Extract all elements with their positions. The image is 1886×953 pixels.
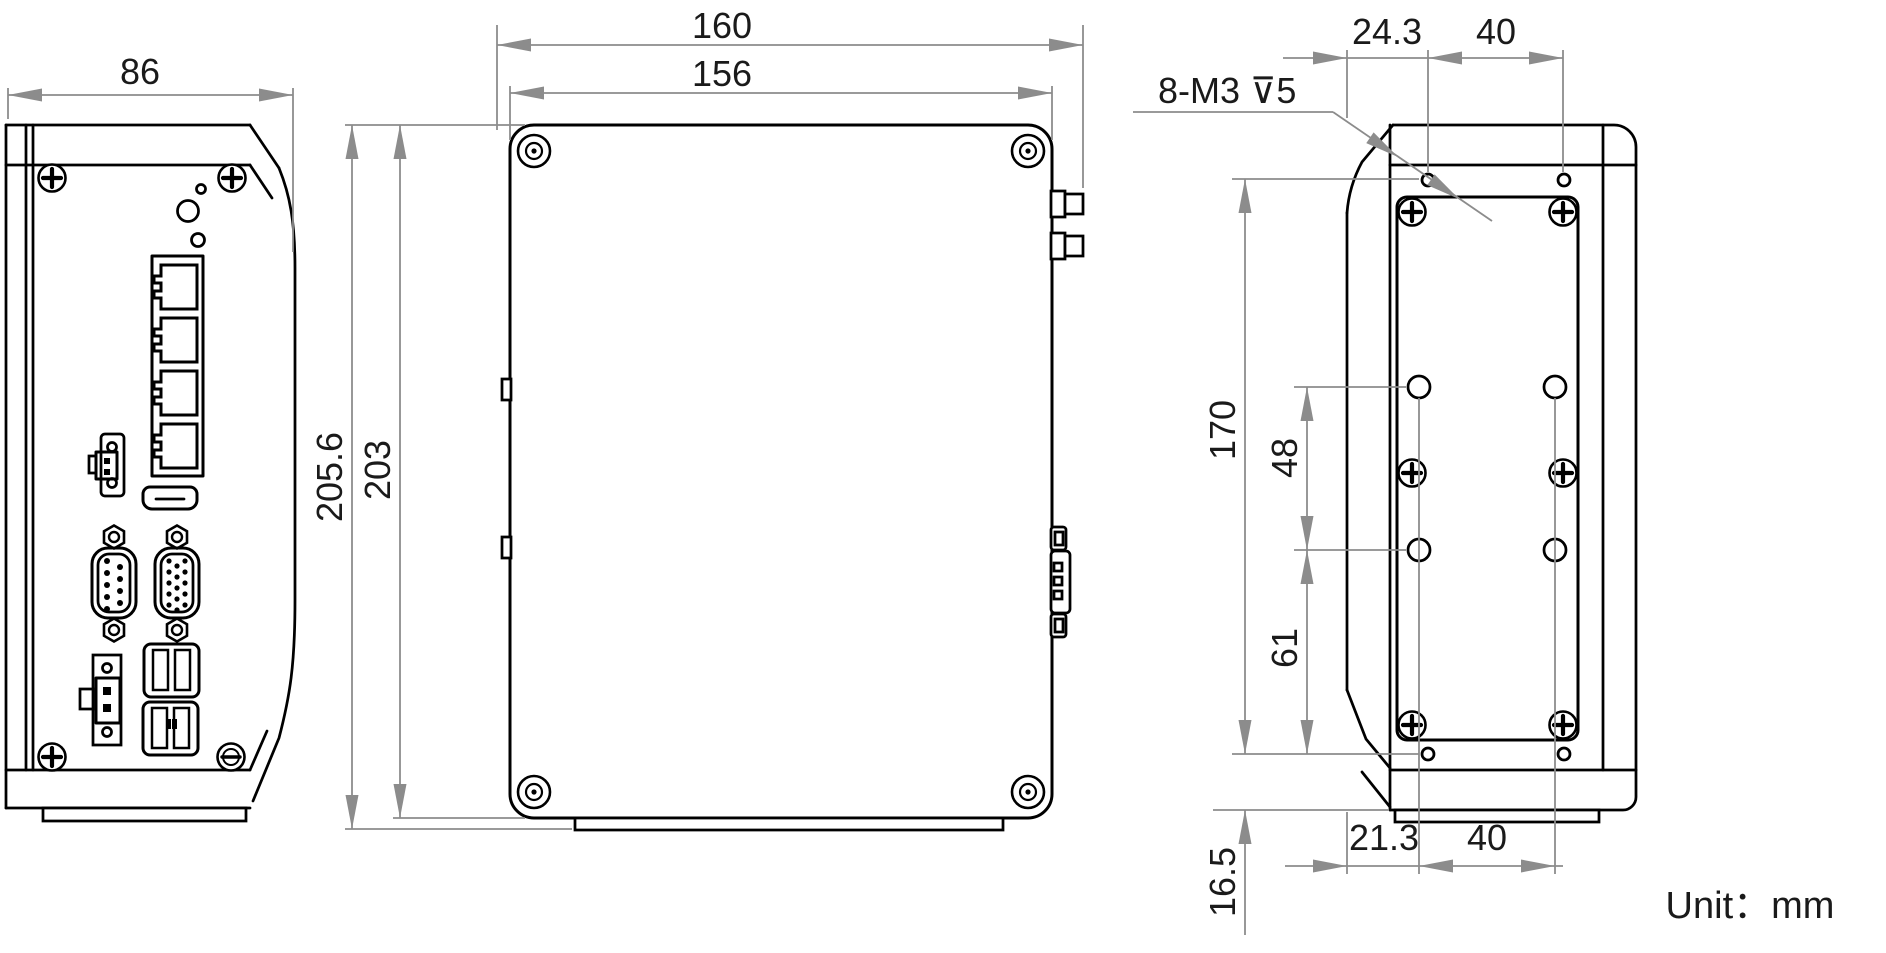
technical-drawing-page: 86 — [0, 0, 1886, 953]
dim-side-overall-height: 205.6 — [309, 432, 350, 522]
dim-rear-bottom-spacing: 40 — [1467, 817, 1507, 858]
dim-side-body-width: 156 — [692, 53, 752, 94]
dim-side-overall-width: 160 — [692, 5, 752, 46]
dim-rear-bottom-offset: 21.3 — [1349, 817, 1419, 858]
dim-rear-lower-spacing: 61 — [1264, 628, 1305, 668]
dimension-drawing: 86 — [0, 0, 1886, 953]
dim-rear-top-spacing: 40 — [1476, 11, 1516, 52]
dim-side-body-height: 203 — [357, 440, 398, 500]
dim-rear-mid-spacing: 48 — [1264, 438, 1305, 478]
dim-front-width: 86 — [120, 51, 160, 92]
front-foot — [43, 808, 246, 821]
dim-rear-foot-offset: 16.5 — [1202, 847, 1243, 917]
side-db-connector-icon — [1051, 527, 1070, 637]
side-foot — [575, 818, 1003, 830]
thread-depth-note: 8-M3 ⊽5 — [1158, 70, 1296, 111]
unit-label: Unit：mm — [1666, 885, 1835, 927]
dim-rear-top-offset: 24.3 — [1352, 11, 1422, 52]
ground-screw-icon — [218, 744, 245, 771]
dim-rear-hole-span: 170 — [1202, 400, 1243, 460]
